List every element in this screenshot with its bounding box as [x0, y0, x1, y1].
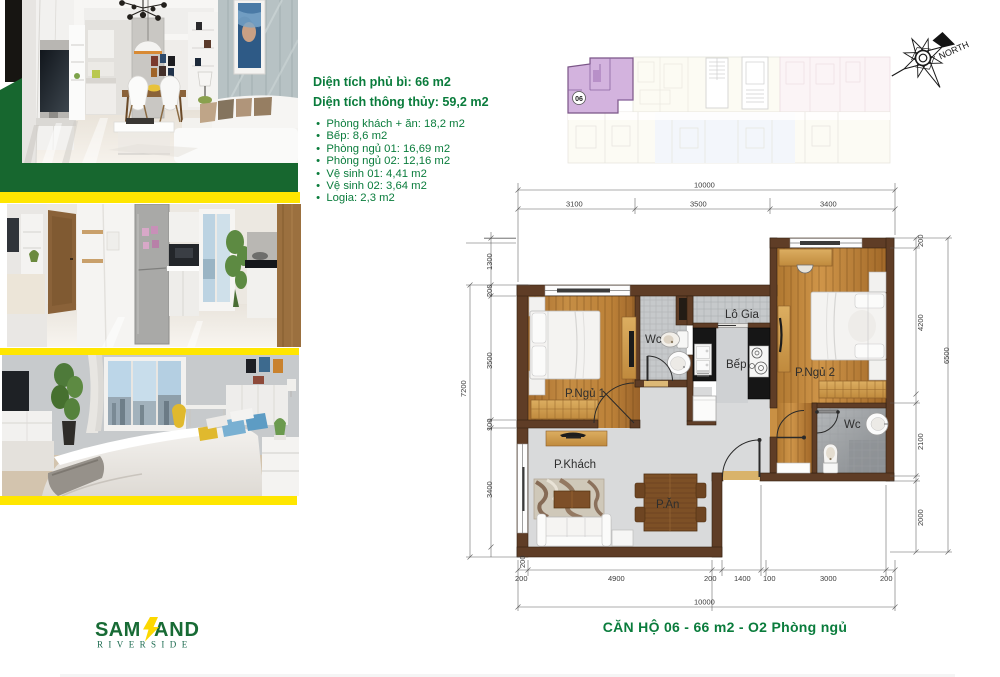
svg-text:7200: 7200	[459, 380, 468, 397]
svg-text:10000: 10000	[694, 598, 715, 607]
svg-text:3400: 3400	[485, 481, 494, 498]
svg-text:200: 200	[485, 284, 494, 297]
svg-text:2100: 2100	[916, 433, 925, 450]
svg-text:Lô Gia: Lô Gia	[725, 309, 759, 321]
svg-text:Bếp: Bếp	[726, 359, 746, 371]
svg-text:1300: 1300	[485, 253, 494, 270]
svg-text:200: 200	[916, 234, 925, 247]
svg-text:3500: 3500	[485, 352, 494, 369]
svg-text:200: 200	[704, 574, 717, 583]
svg-text:2000: 2000	[916, 509, 925, 526]
svg-text:P.Ngủ 2: P.Ngủ 2	[795, 367, 835, 379]
svg-text:200: 200	[880, 574, 893, 583]
svg-text:1400: 1400	[734, 574, 751, 583]
svg-text:3000: 3000	[820, 574, 837, 583]
svg-text:100: 100	[763, 574, 776, 583]
svg-text:3100: 3100	[566, 200, 583, 209]
svg-text:SAM: SAM	[95, 619, 141, 641]
svg-text:P.Ngủ 1: P.Ngủ 1	[565, 388, 605, 400]
svg-text:4200: 4200	[916, 314, 925, 331]
svg-text:200: 200	[515, 574, 528, 583]
svg-text:AND: AND	[154, 619, 200, 641]
svg-text:10000: 10000	[694, 181, 715, 190]
svg-text:4900: 4900	[608, 574, 625, 583]
svg-text:3500: 3500	[690, 200, 707, 209]
svg-text:3400: 3400	[820, 200, 837, 209]
svg-text:Wc: Wc	[645, 334, 662, 346]
svg-text:P.Khách: P.Khách	[554, 459, 596, 471]
svg-text:RIVERSIDE: RIVERSIDE	[97, 640, 193, 650]
svg-text:06: 06	[575, 96, 583, 103]
svg-text:200: 200	[518, 555, 527, 568]
svg-text:Wc: Wc	[844, 419, 861, 431]
svg-text:6500: 6500	[942, 347, 951, 364]
svg-text:100: 100	[485, 418, 494, 431]
svg-text:P.Ăn: P.Ăn	[656, 498, 679, 511]
